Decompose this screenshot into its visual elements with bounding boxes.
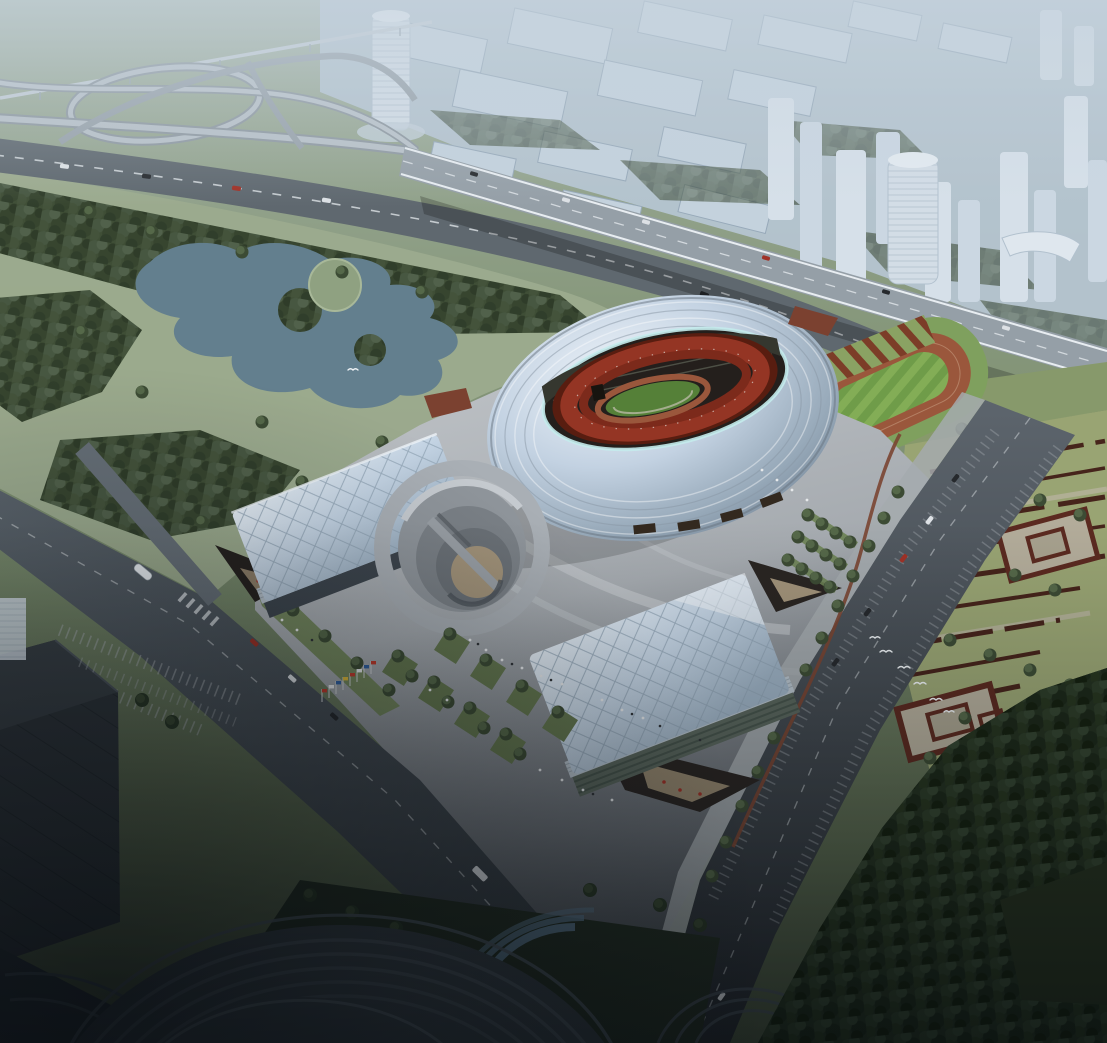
- aerial-rendering: [0, 0, 1107, 1043]
- vignette-corner: [0, 0, 1107, 1043]
